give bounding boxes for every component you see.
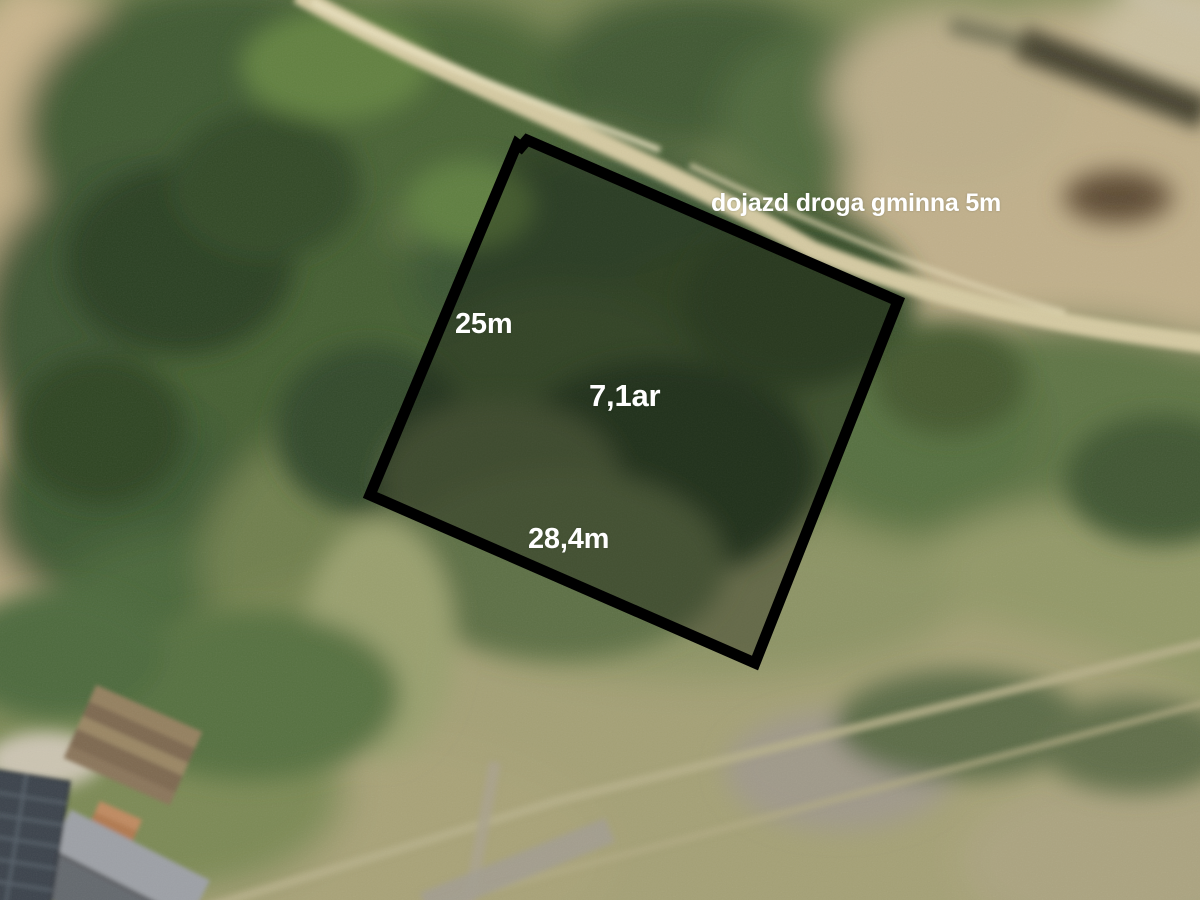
bottom-side-length-label: 28,4m	[528, 525, 609, 554]
access-road-label: dojazd droga gminna 5m	[711, 191, 1001, 216]
satellite-imagery	[0, 0, 1200, 900]
plot-area-label: 7,1ar	[589, 380, 660, 411]
aerial-photo-canvas: dojazd droga gminna 5m 25m 7,1ar 28,4m	[0, 0, 1200, 900]
left-side-length-label: 25m	[455, 310, 512, 339]
